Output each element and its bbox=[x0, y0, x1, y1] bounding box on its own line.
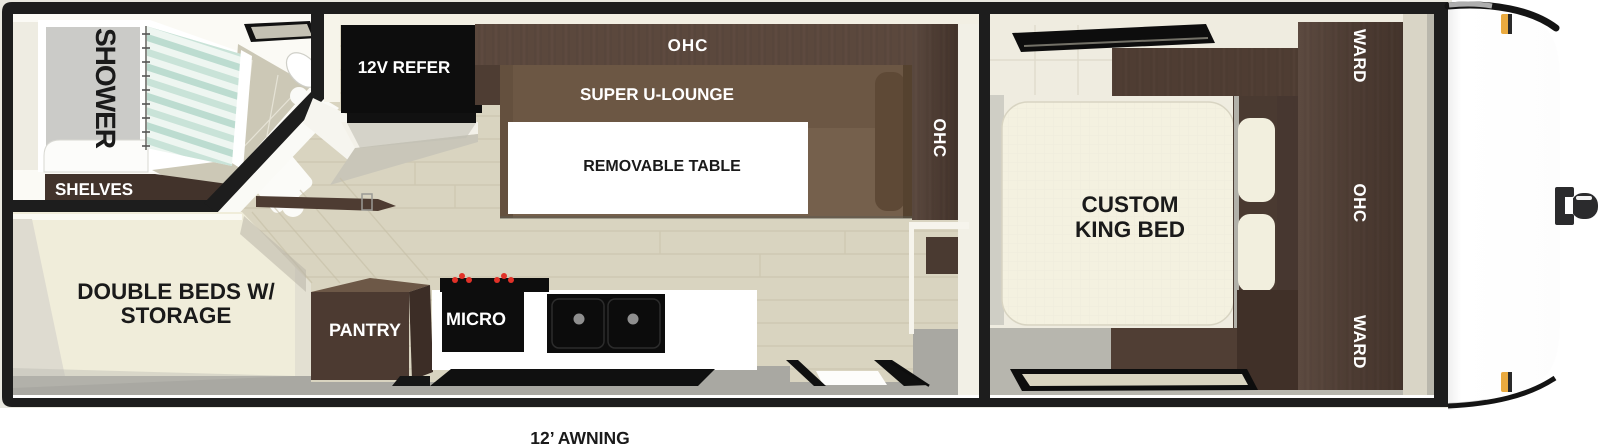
svg-text:SHOWER: SHOWER bbox=[90, 28, 121, 149]
svg-text:PANTRY: PANTRY bbox=[329, 320, 401, 340]
svg-text:SUPER U-LOUNGE: SUPER U-LOUNGE bbox=[580, 85, 734, 104]
svg-text:OHC: OHC bbox=[930, 118, 949, 157]
svg-text:OHC: OHC bbox=[668, 36, 709, 55]
svg-text:12’ AWNING: 12’ AWNING bbox=[530, 428, 630, 444]
svg-text:MICRO: MICRO bbox=[446, 309, 506, 329]
svg-text:KING BED: KING BED bbox=[1075, 217, 1185, 242]
svg-text:WARD: WARD bbox=[1350, 315, 1369, 369]
svg-text:12V REFER: 12V REFER bbox=[358, 58, 451, 77]
svg-text:STORAGE: STORAGE bbox=[121, 303, 232, 328]
svg-text:CUSTOM: CUSTOM bbox=[1081, 192, 1178, 217]
svg-text:OHC: OHC bbox=[1350, 183, 1369, 222]
svg-text:SHELVES: SHELVES bbox=[55, 180, 133, 199]
svg-text:WARD: WARD bbox=[1350, 29, 1369, 83]
svg-text:REMOVABLE TABLE: REMOVABLE TABLE bbox=[583, 158, 741, 175]
svg-text:DOUBLE BEDS W/: DOUBLE BEDS W/ bbox=[77, 279, 275, 304]
